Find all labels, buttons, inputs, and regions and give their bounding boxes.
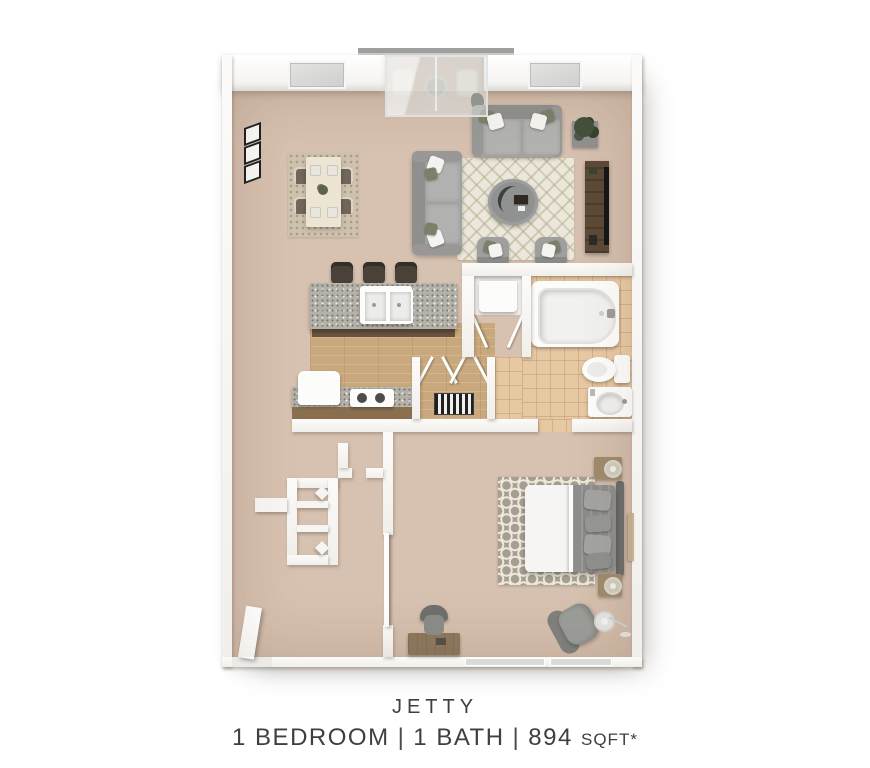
bar-stool (363, 262, 385, 284)
console-decor (589, 167, 597, 174)
floor-hall-tile (495, 357, 522, 419)
floor-bath-doorway-tile (538, 419, 572, 432)
wall-utility-right (487, 357, 495, 419)
wall-bath-left (522, 276, 531, 357)
bed (525, 485, 616, 572)
throw-pillow (424, 222, 438, 236)
vanity-faucet (622, 399, 627, 404)
wall-kitchen-bottom (292, 419, 538, 432)
bed-sheet-fold (569, 485, 573, 572)
area-value: 894 (528, 724, 573, 751)
vanity-accessory (590, 389, 595, 396)
wall-closet-bottom (287, 555, 328, 565)
console-decor (589, 235, 597, 245)
wall-laundry-left (462, 276, 474, 357)
sink-drain (372, 303, 376, 307)
water-heater (434, 393, 474, 415)
coffee-table (488, 179, 538, 225)
skylight-window (528, 61, 582, 89)
throw-pillow (488, 243, 503, 258)
tv-screen (604, 167, 609, 245)
sink-drain (397, 303, 401, 307)
wall-living-bath (462, 263, 632, 276)
island-double-sink (360, 286, 412, 324)
tub-drain (599, 311, 604, 316)
wall-utility-left (412, 357, 420, 419)
table-lamp (604, 577, 622, 595)
toilet-tank (614, 355, 630, 383)
toilet-bowl (582, 357, 616, 382)
wall-art-leaning (628, 513, 634, 561)
skylight-window (288, 61, 346, 89)
vanity-sink (596, 392, 624, 415)
stove-burner (357, 393, 367, 403)
dining-chair (339, 167, 353, 184)
refrigerator (298, 371, 340, 405)
balcony-sliding-glass-door (385, 55, 488, 117)
bedroom-count: 1 BEDROOM (232, 724, 390, 751)
balcony-railing (358, 48, 514, 53)
place-setting (310, 207, 321, 218)
wall-closet-connector (366, 468, 383, 478)
dining-chair (339, 197, 353, 214)
stove-burner (375, 393, 385, 403)
wall-exterior-right (632, 55, 642, 667)
desk-chair-seat (424, 615, 444, 635)
sink-basin (388, 290, 413, 323)
wall-closet-right (328, 478, 338, 565)
closet-shelf (297, 501, 328, 508)
counter-cabinet (292, 407, 414, 419)
dining-table (306, 157, 341, 227)
wall-bath-bottom (572, 419, 632, 432)
bed-pillow (585, 552, 612, 571)
glass-divider (435, 57, 437, 111)
toilet-seat (587, 362, 607, 377)
loveseat (412, 151, 462, 255)
tub-faucet (607, 309, 615, 318)
place-setting (327, 207, 338, 218)
plan-details: 1 BEDROOM|1 BATH|894 SQFT* (0, 724, 870, 752)
bathroom-vanity (588, 387, 632, 417)
bathtub (531, 281, 619, 347)
table-tray (514, 195, 528, 204)
plant-foliage (574, 117, 594, 137)
closet-shelf (255, 498, 287, 512)
window-left-wall (244, 125, 264, 183)
wall-exterior-left (222, 55, 232, 667)
floor-lamp (594, 611, 615, 632)
throw-pillow (541, 243, 556, 258)
separator: | (505, 724, 529, 751)
closet-shelf (297, 525, 328, 532)
sink-basin (363, 290, 388, 323)
floor-lamp-base (620, 632, 631, 637)
bed-pillow (584, 514, 611, 533)
range-stove (350, 389, 394, 407)
window-bedroom-bottom (465, 658, 545, 666)
wall-closet-left (287, 478, 297, 555)
loveseat-back (412, 151, 425, 255)
wall-closet-connector (338, 443, 348, 468)
caption: JETTY 1 BEDROOM|1 BATH|894 SQFT* (0, 696, 870, 752)
window-bedroom-bottom (550, 658, 612, 666)
bedroom-door-open (384, 533, 389, 627)
bar-stool (395, 262, 417, 284)
bed-headboard (616, 481, 624, 576)
tv-console (585, 161, 609, 253)
bed-pillow (583, 489, 612, 512)
bathtub-basin (538, 288, 616, 344)
place-setting (310, 165, 321, 176)
wall-closet-connector (338, 468, 352, 478)
centerpiece (318, 185, 328, 195)
separator: | (390, 724, 414, 751)
bathroom-count: 1 BATH (413, 724, 504, 751)
desk-item (436, 638, 446, 645)
place-setting (327, 165, 338, 176)
wall-hallway (383, 625, 393, 657)
table-lamp (604, 460, 622, 478)
table-book (518, 206, 525, 211)
wall-hallway (383, 432, 393, 535)
area-unit: SQFT* (581, 730, 638, 749)
throw-pillow (424, 167, 438, 181)
bar-stool (331, 262, 353, 284)
desk (408, 633, 460, 655)
plan-name: JETTY (0, 696, 870, 719)
floor-plan (222, 55, 642, 667)
stacked-washer-dryer (479, 279, 517, 312)
